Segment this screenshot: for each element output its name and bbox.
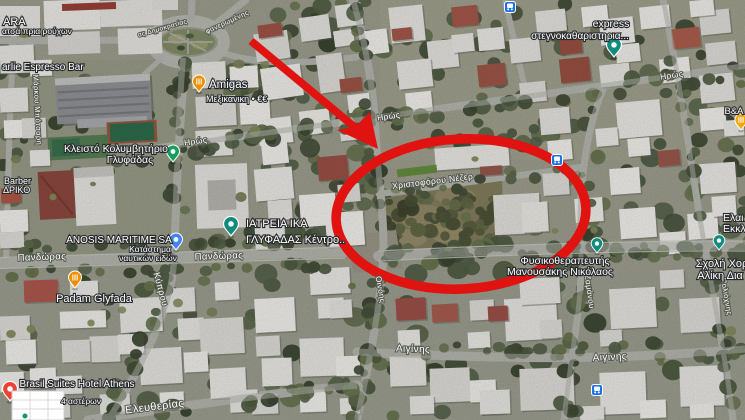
svg-text:Πανδώρας: Πανδώρας xyxy=(194,250,243,263)
svg-text:Γλυφάδας: Γλυφάδας xyxy=(107,154,153,166)
svg-text:ΓΛΥΦΑΔΑΣ Κέντρο..: ΓΛΥΦΑΔΑΣ Κέντρο.. xyxy=(246,234,345,246)
svg-text:ΔΡΙΚΟ: ΔΡΙΚΟ xyxy=(3,185,30,195)
svg-text:Πανδώρας: Πανδώρας xyxy=(17,251,66,264)
svg-text:Amigas: Amigas xyxy=(209,79,248,91)
svg-text:Σχολή Χορ: Σχολή Χορ xyxy=(696,258,745,270)
svg-text:arlie Espresso Bar: arlie Espresso Bar xyxy=(2,62,84,73)
svg-text:4 αστέρων: 4 αστέρων xyxy=(61,396,101,406)
svg-text:Μανουσάκης Νικόλαος: Μανουσάκης Νικόλαος xyxy=(507,266,613,278)
svg-text:Εκκλ: Εκκλ xyxy=(723,223,745,235)
svg-text:Αιγίνης: Αιγίνης xyxy=(396,342,431,355)
svg-text:Αλίκη Δια: Αλίκη Δια xyxy=(697,270,743,282)
svg-text:ΙΑΤΡΕΙΑ ΙΚΑ: ΙΑΤΡΕΙΑ ΙΚΑ xyxy=(246,218,308,230)
svg-text:express: express xyxy=(593,18,630,30)
svg-text:Brasil Suites Hotel Athens: Brasil Suites Hotel Athens xyxy=(19,379,134,390)
svg-text:Αιγίνης: Αιγίνης xyxy=(592,350,627,364)
svg-text:Μεξικανικη • €€: Μεξικανικη • €€ xyxy=(206,94,267,104)
svg-text:B&A: B&A xyxy=(724,106,744,117)
svg-text:στεγνοκαθαριστηρια...: στεγνοκαθαριστηρια... xyxy=(531,31,629,42)
svg-text:ναυτικών ειδών: ναυτικών ειδών xyxy=(119,253,177,263)
svg-text:Padam Glyfada: Padam Glyfada xyxy=(56,293,133,305)
svg-text:ατσά πρια ρούχων: ατσά πρια ρούχων xyxy=(2,26,72,36)
